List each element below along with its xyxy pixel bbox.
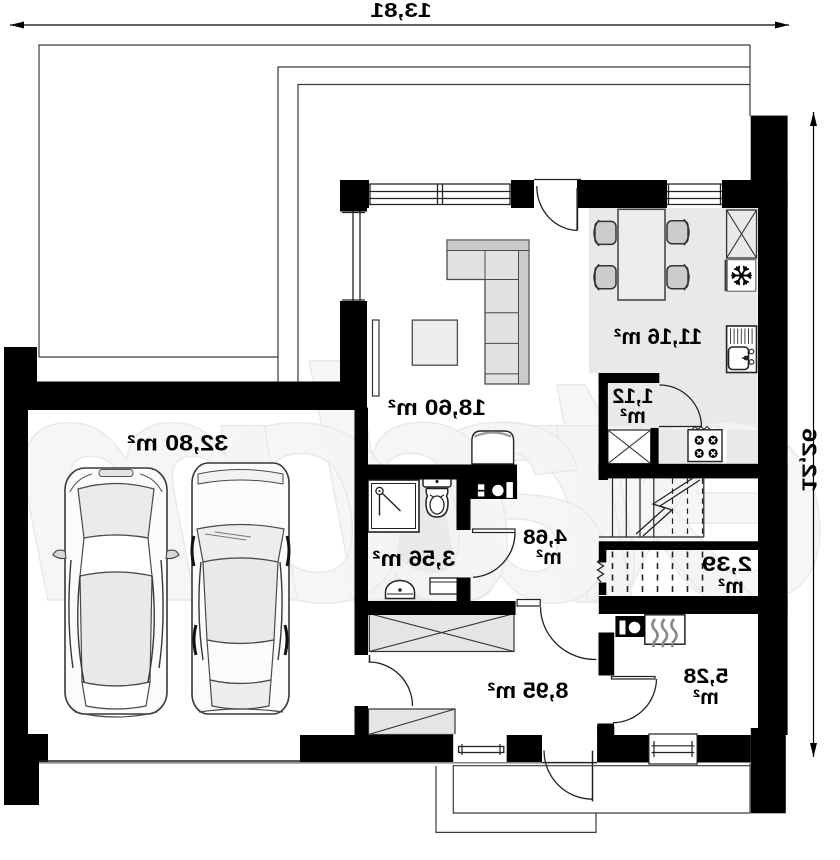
svg-text:2,39: 2,39 xyxy=(702,553,752,576)
svg-text:13,81: 13,81 xyxy=(371,0,432,22)
svg-text:8,95 m²: 8,95 m² xyxy=(488,678,569,703)
svg-text:5,28: 5,28 xyxy=(683,665,728,688)
svg-text:m²: m² xyxy=(536,546,562,569)
svg-text:12,26: 12,26 xyxy=(798,428,820,492)
svg-text:m²: m² xyxy=(718,575,744,598)
svg-text:3,56 m²: 3,56 m² xyxy=(373,546,456,571)
svg-text:11,16 m²: 11,16 m² xyxy=(614,324,702,349)
svg-text:m²: m² xyxy=(620,405,646,428)
svg-text:32,80 m²: 32,80 m² xyxy=(127,431,228,456)
svg-text:m²: m² xyxy=(693,686,719,709)
svg-text:18,60 m²: 18,60 m² xyxy=(388,395,486,420)
